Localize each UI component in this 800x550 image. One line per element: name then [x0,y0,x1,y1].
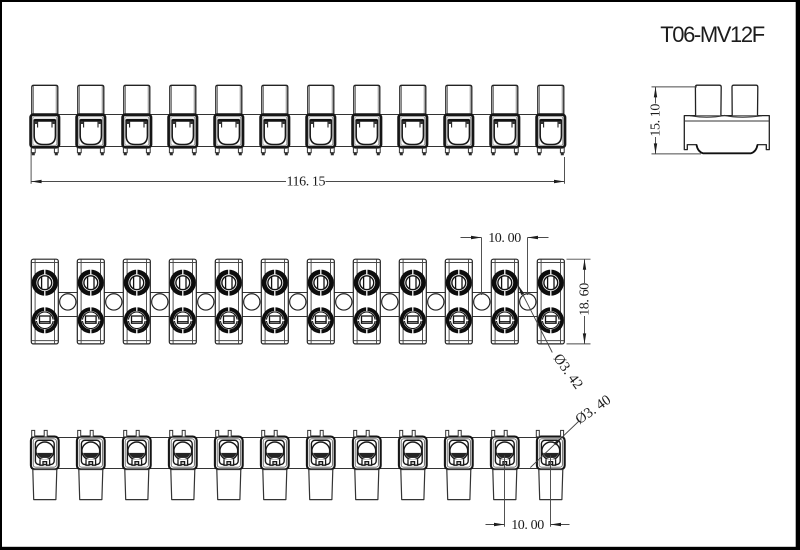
svg-text:15. 10: 15. 10 [649,104,664,137]
svg-text:116. 15: 116. 15 [286,175,325,190]
svg-text:T06-MV12F: T06-MV12F [660,22,765,47]
svg-text:10. 00: 10. 00 [488,231,521,246]
svg-text:10. 00: 10. 00 [511,518,544,533]
svg-text:18. 60: 18. 60 [578,283,593,316]
